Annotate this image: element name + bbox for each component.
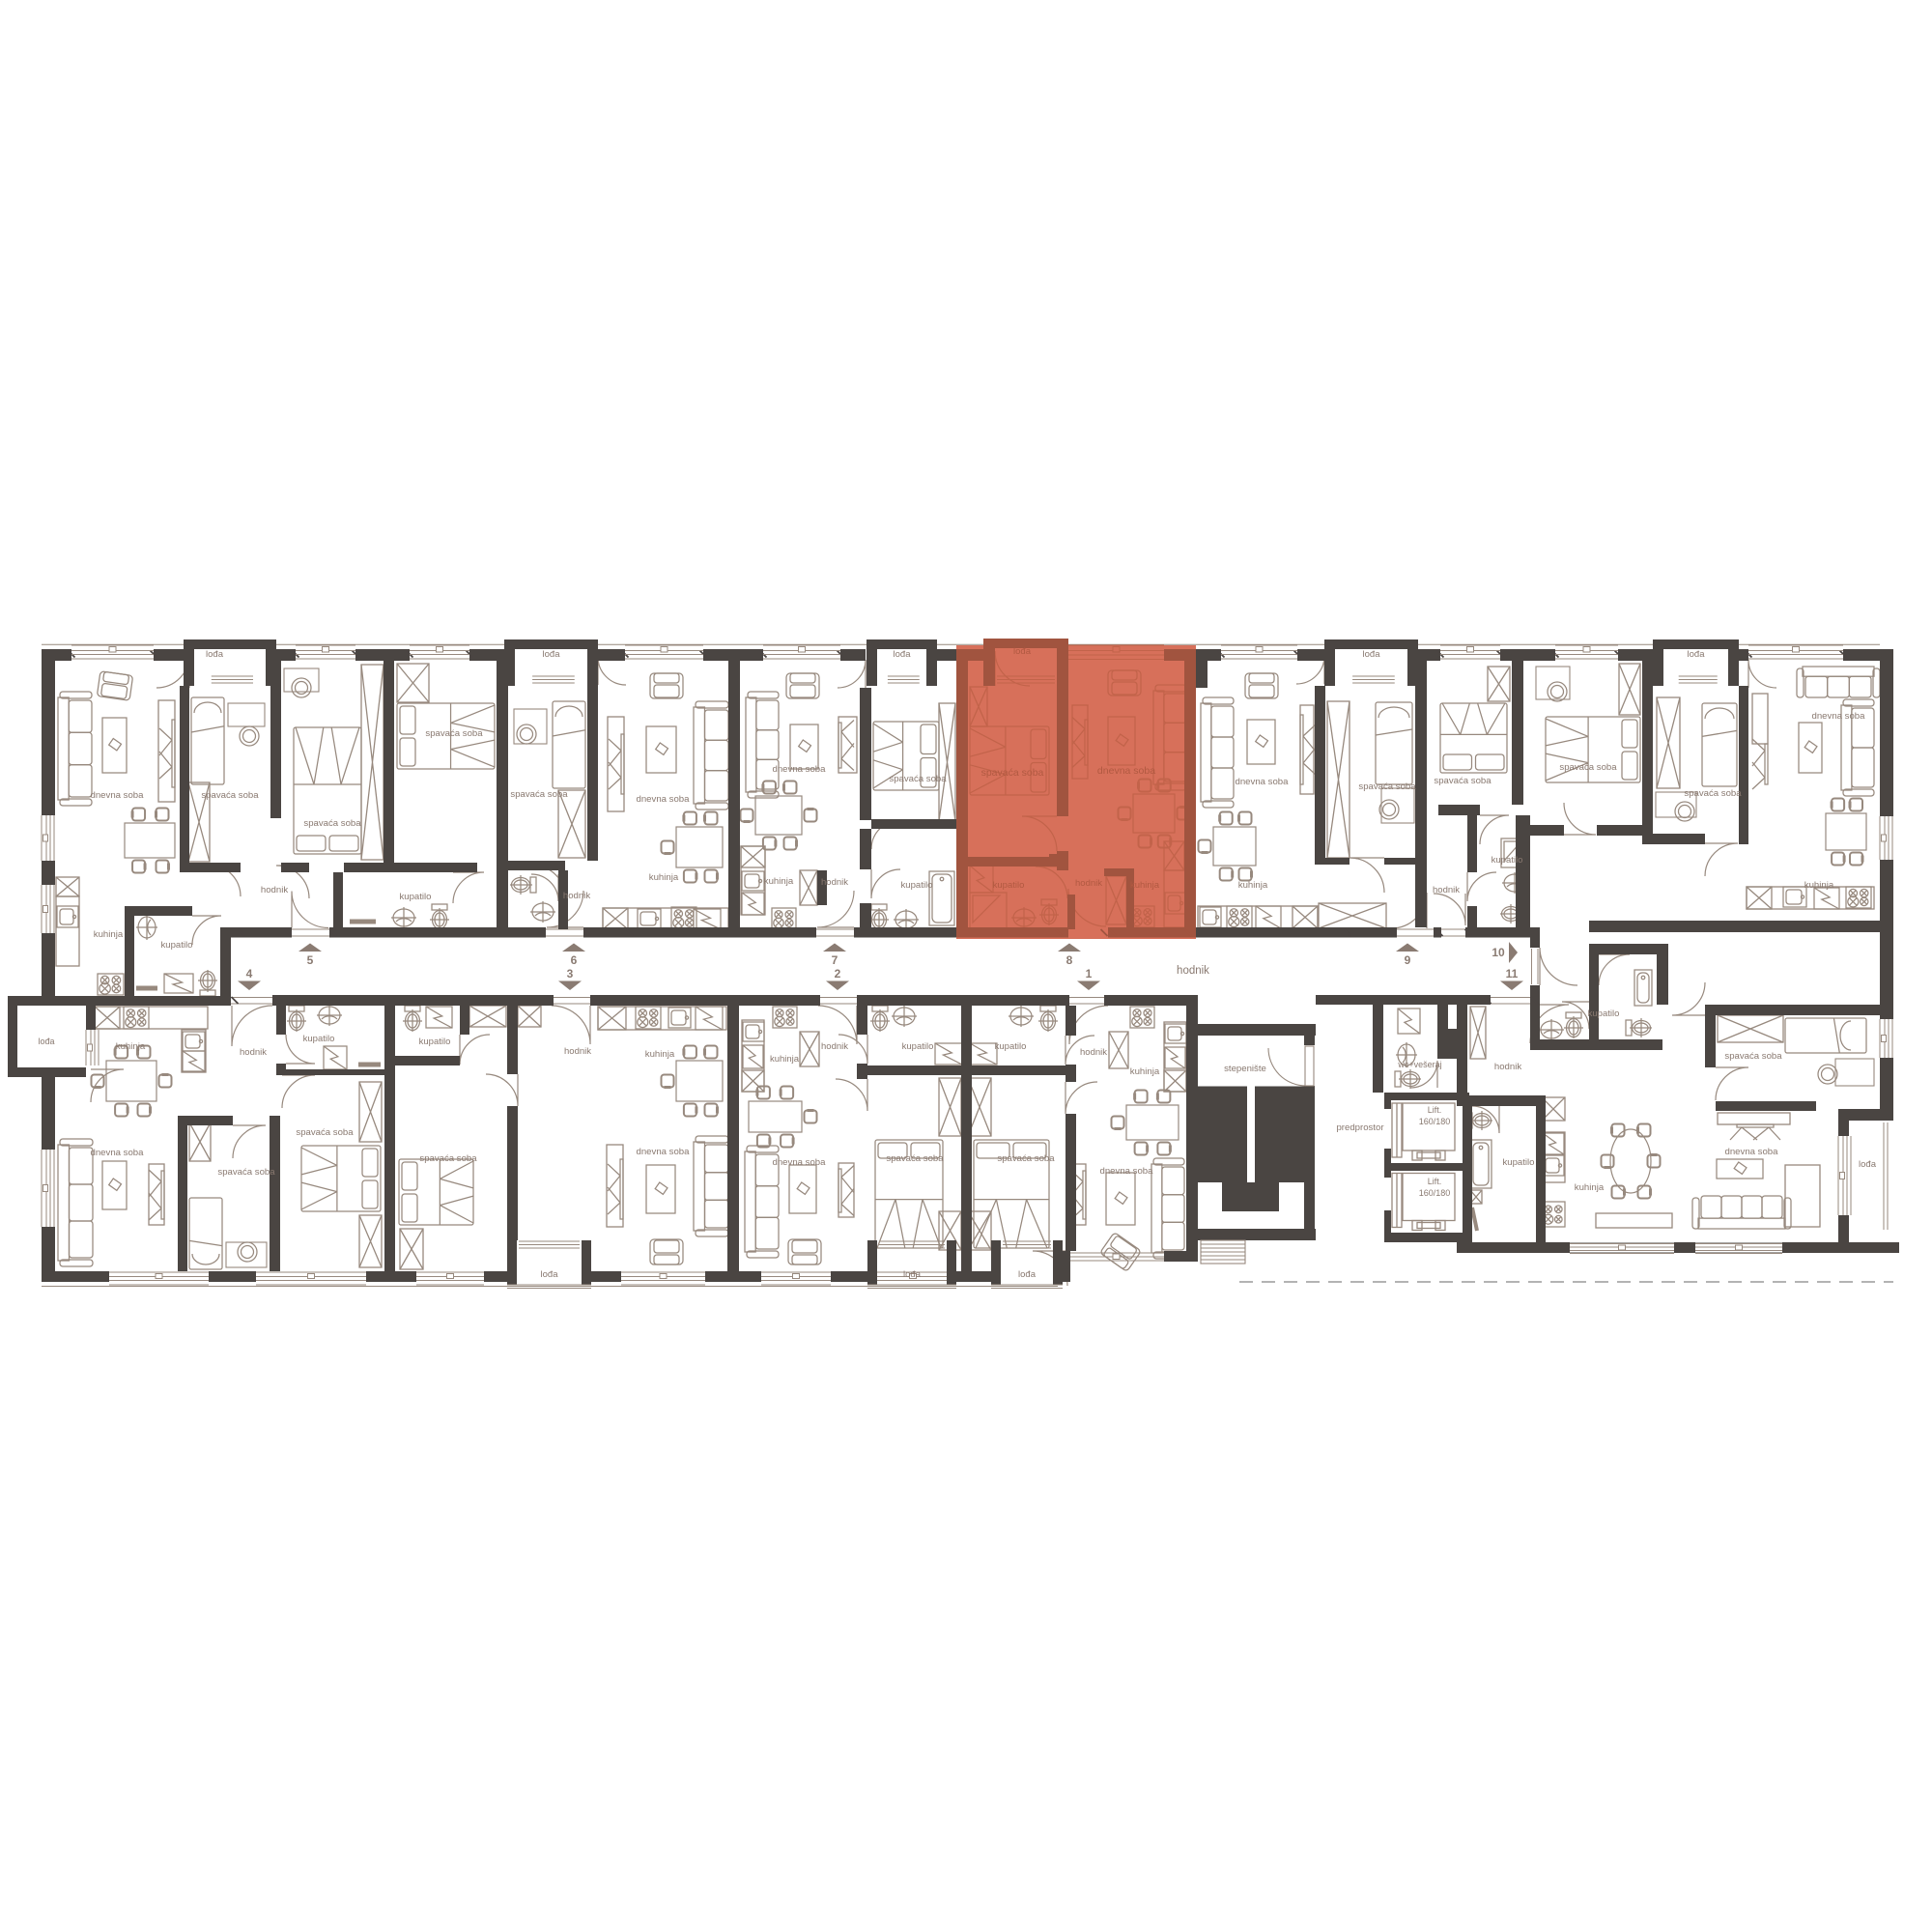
svg-text:4: 4 xyxy=(246,967,253,980)
svg-text:spavaća soba: spavaća soba xyxy=(296,1127,354,1138)
svg-text:hodnik: hodnik xyxy=(563,891,590,901)
svg-text:lođa: lođa xyxy=(206,649,224,660)
svg-text:lođa: lođa xyxy=(38,1037,54,1046)
svg-text:160/180: 160/180 xyxy=(1419,1117,1451,1126)
svg-text:hodnik: hodnik xyxy=(261,885,288,895)
svg-text:lođa: lođa xyxy=(1859,1159,1877,1170)
svg-text:kupatilo: kupatilo xyxy=(160,940,192,951)
svg-text:spavaća soba: spavaća soba xyxy=(886,1153,944,1164)
svg-text:7: 7 xyxy=(832,953,838,967)
svg-text:wc+vešeraj: wc+vešeraj xyxy=(1397,1060,1441,1069)
svg-text:dnevna soba: dnevna soba xyxy=(773,1157,827,1168)
svg-text:kupatilo: kupatilo xyxy=(303,1034,335,1044)
svg-text:kupatilo: kupatilo xyxy=(900,880,932,891)
svg-text:kuhinja: kuhinja xyxy=(1130,1066,1160,1077)
svg-text:kupatilo: kupatilo xyxy=(419,1037,451,1047)
svg-text:spavaća soba: spavaća soba xyxy=(1434,776,1492,786)
svg-text:9: 9 xyxy=(1405,953,1411,967)
svg-text:10: 10 xyxy=(1492,946,1505,959)
svg-text:kupatilo: kupatilo xyxy=(902,1041,934,1052)
svg-text:kuhinja: kuhinja xyxy=(1130,880,1160,891)
svg-text:dnevna soba: dnevna soba xyxy=(91,790,145,801)
svg-text:predprostor: predprostor xyxy=(1336,1122,1384,1133)
svg-text:dnevna soba: dnevna soba xyxy=(91,1148,145,1158)
svg-text:lođa: lođa xyxy=(541,1269,559,1280)
svg-text:kuhinja: kuhinja xyxy=(649,872,679,883)
svg-text:spavaća soba: spavaća soba xyxy=(201,790,259,801)
svg-text:spavaća soba: spavaća soba xyxy=(510,789,568,800)
svg-text:2: 2 xyxy=(835,967,841,980)
svg-text:spavaća soba: spavaća soba xyxy=(1358,781,1416,792)
svg-text:spavaća soba: spavaća soba xyxy=(981,767,1044,779)
svg-text:spavaća soba: spavaća soba xyxy=(303,818,361,829)
svg-text:hodnik: hodnik xyxy=(821,877,848,888)
svg-text:kuhinja: kuhinja xyxy=(116,1041,146,1052)
svg-text:dnevna soba: dnevna soba xyxy=(637,1147,691,1157)
svg-text:spavaća soba: spavaća soba xyxy=(425,728,483,739)
svg-text:dnevna soba: dnevna soba xyxy=(1097,765,1155,777)
svg-text:lođa: lođa xyxy=(903,1269,922,1280)
svg-text:Lift.: Lift. xyxy=(1428,1177,1442,1186)
svg-text:11: 11 xyxy=(1506,967,1519,980)
svg-text:kuhinja: kuhinja xyxy=(764,876,794,887)
svg-text:dnevna soba: dnevna soba xyxy=(1725,1147,1779,1157)
svg-text:hodnik: hodnik xyxy=(1494,1062,1521,1072)
svg-text:Lift.: Lift. xyxy=(1428,1105,1442,1115)
svg-text:spavaća soba: spavaća soba xyxy=(1559,762,1617,773)
svg-text:spavaća soba: spavaća soba xyxy=(997,1153,1055,1164)
svg-text:kuhinja: kuhinja xyxy=(1238,880,1268,891)
svg-text:8: 8 xyxy=(1066,953,1073,967)
svg-text:hodnik: hodnik xyxy=(1433,885,1460,895)
svg-text:hodnik: hodnik xyxy=(1080,1047,1107,1058)
svg-text:160/180: 160/180 xyxy=(1419,1188,1451,1198)
svg-text:dnevna soba: dnevna soba xyxy=(1236,777,1290,787)
svg-text:1: 1 xyxy=(1086,967,1093,980)
svg-text:lođa: lođa xyxy=(1013,646,1032,657)
svg-text:spavaća soba: spavaća soba xyxy=(889,774,947,784)
svg-text:kuhinja: kuhinja xyxy=(770,1054,800,1065)
svg-text:hodnik: hodnik xyxy=(821,1041,848,1052)
svg-text:hodnik: hodnik xyxy=(240,1047,267,1058)
svg-text:kuhinja: kuhinja xyxy=(645,1049,675,1060)
svg-text:kuhinja: kuhinja xyxy=(1804,880,1834,891)
svg-text:kuhinja: kuhinja xyxy=(1575,1182,1605,1193)
svg-text:kupatilo: kupatilo xyxy=(1502,1157,1534,1168)
svg-text:kupatilo: kupatilo xyxy=(399,892,431,902)
svg-text:lođa: lođa xyxy=(894,649,912,660)
svg-text:kupatilo: kupatilo xyxy=(995,1041,1027,1052)
svg-text:dnevna soba: dnevna soba xyxy=(1812,711,1866,722)
svg-text:hodnik: hodnik xyxy=(1075,878,1102,889)
svg-text:lođa: lođa xyxy=(1018,1269,1037,1280)
svg-text:lođa: lođa xyxy=(543,649,561,660)
svg-text:dnevna soba: dnevna soba xyxy=(637,794,691,805)
svg-text:kupatilo: kupatilo xyxy=(1588,1009,1620,1019)
svg-text:kuhinja: kuhinja xyxy=(94,929,124,940)
svg-text:kupatilo: kupatilo xyxy=(1492,855,1523,866)
svg-text:hodnik: hodnik xyxy=(564,1046,591,1057)
svg-text:3: 3 xyxy=(567,967,574,980)
svg-text:stepenište: stepenište xyxy=(1224,1064,1266,1074)
svg-text:spavaća soba: spavaća soba xyxy=(419,1153,477,1164)
svg-text:hodnik: hodnik xyxy=(1177,965,1209,977)
svg-text:dnevna soba: dnevna soba xyxy=(773,764,827,775)
svg-text:spavaća soba: spavaća soba xyxy=(1684,788,1742,799)
svg-text:5: 5 xyxy=(307,953,314,967)
svg-text:dnevna soba: dnevna soba xyxy=(1100,1166,1154,1177)
svg-text:spavaća soba: spavaća soba xyxy=(217,1167,275,1178)
svg-text:kupatilo: kupatilo xyxy=(993,880,1025,891)
svg-text:lođa: lođa xyxy=(1688,649,1706,660)
svg-text:spavaća soba: spavaća soba xyxy=(1724,1051,1782,1062)
svg-text:6: 6 xyxy=(571,953,578,967)
svg-text:lođa: lođa xyxy=(1363,649,1381,660)
